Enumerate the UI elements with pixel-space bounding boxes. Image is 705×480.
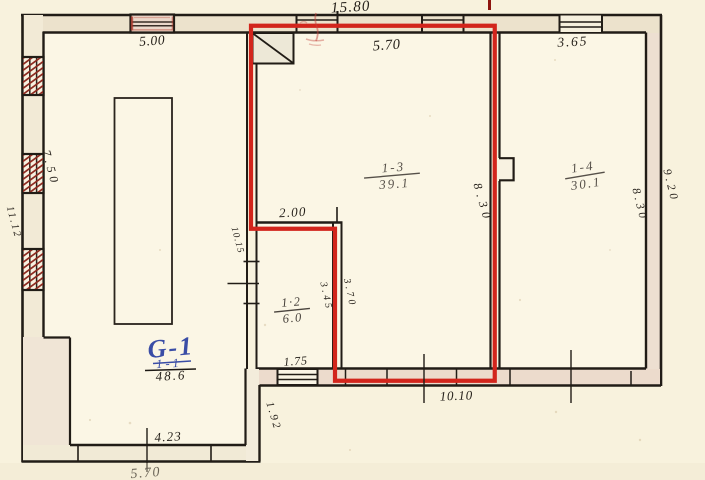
svg-text:1-3: 1-3 bbox=[381, 159, 405, 176]
svg-text:1.75: 1.75 bbox=[283, 353, 308, 369]
svg-text:6.0: 6.0 bbox=[282, 310, 303, 326]
svg-text:1·2: 1·2 bbox=[281, 294, 302, 310]
svg-text:5.70: 5.70 bbox=[372, 37, 401, 55]
svg-text:15.80: 15.80 bbox=[331, 0, 372, 17]
svg-text:10.10: 10.10 bbox=[439, 387, 473, 403]
svg-text:39.1: 39.1 bbox=[378, 175, 411, 192]
svg-text:48.6: 48.6 bbox=[155, 367, 186, 384]
svg-text:5.00: 5.00 bbox=[139, 32, 166, 49]
svg-text:2.00: 2.00 bbox=[279, 204, 307, 220]
svg-text:3.65: 3.65 bbox=[556, 33, 589, 50]
svg-text:4.23: 4.23 bbox=[154, 428, 182, 444]
